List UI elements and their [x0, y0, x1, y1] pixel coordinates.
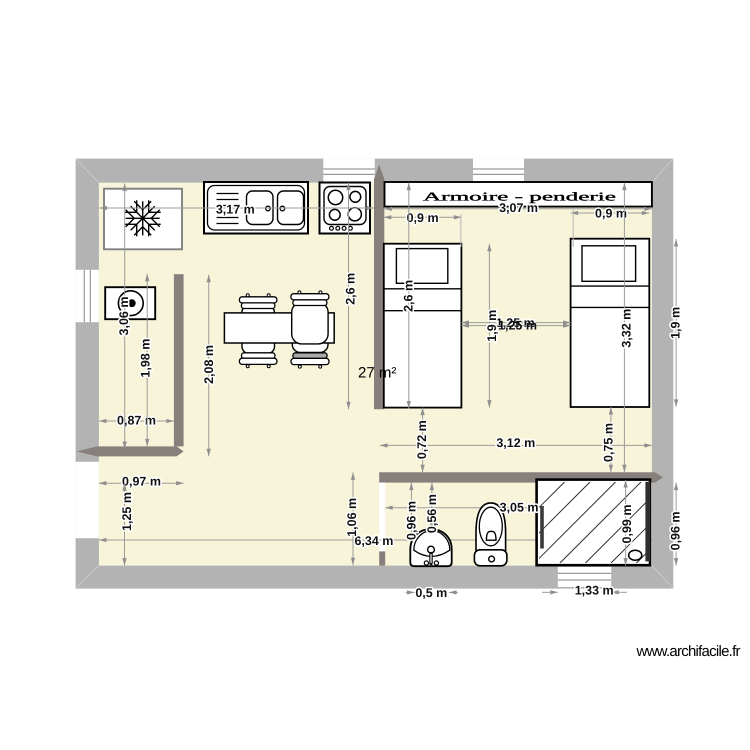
svg-text:3,17 m: 3,17 m: [216, 202, 255, 216]
svg-text:www.archifacile.fr: www.archifacile.fr: [636, 643, 741, 660]
svg-text:2,6 m: 2,6 m: [401, 280, 415, 312]
svg-text:0,96 m: 0,96 m: [405, 501, 419, 540]
svg-text:1,98 m: 1,98 m: [139, 339, 153, 378]
svg-text:1,25 m: 1,25 m: [120, 492, 134, 531]
svg-text:3,06 m: 3,06 m: [117, 297, 131, 336]
svg-text:0,99 m: 0,99 m: [620, 505, 634, 544]
svg-text:1,25 m: 1,25 m: [498, 319, 537, 333]
svg-text:1,9 m: 1,9 m: [669, 307, 683, 339]
svg-text:2,08 m: 2,08 m: [202, 345, 216, 384]
svg-text:1,06 m: 1,06 m: [345, 498, 359, 537]
svg-text:0,5 m: 0,5 m: [415, 586, 447, 600]
svg-text:1,9 m: 1,9 m: [485, 310, 499, 342]
svg-text:0,87 m: 0,87 m: [117, 414, 156, 428]
svg-text:0,72 m: 0,72 m: [415, 420, 429, 459]
svg-text:27 m²: 27 m²: [358, 365, 396, 382]
svg-text:3,12 m: 3,12 m: [496, 436, 535, 450]
svg-text:1,33 m: 1,33 m: [575, 584, 614, 598]
svg-text:2,6 m: 2,6 m: [343, 273, 357, 305]
svg-text:0,9 m: 0,9 m: [407, 211, 439, 225]
svg-text:3,32 m: 3,32 m: [620, 309, 634, 348]
svg-text:0,96 m: 0,96 m: [669, 511, 683, 550]
svg-text:0,97 m: 0,97 m: [122, 475, 161, 489]
svg-text:3,07 m: 3,07 m: [499, 201, 538, 215]
svg-text:0,75 m: 0,75 m: [602, 423, 616, 462]
svg-text:3,05 m: 3,05 m: [500, 501, 539, 515]
svg-text:6,34 m: 6,34 m: [354, 534, 393, 548]
svg-text:0,9 m: 0,9 m: [595, 207, 627, 221]
svg-text:0,56 m: 0,56 m: [425, 494, 439, 533]
